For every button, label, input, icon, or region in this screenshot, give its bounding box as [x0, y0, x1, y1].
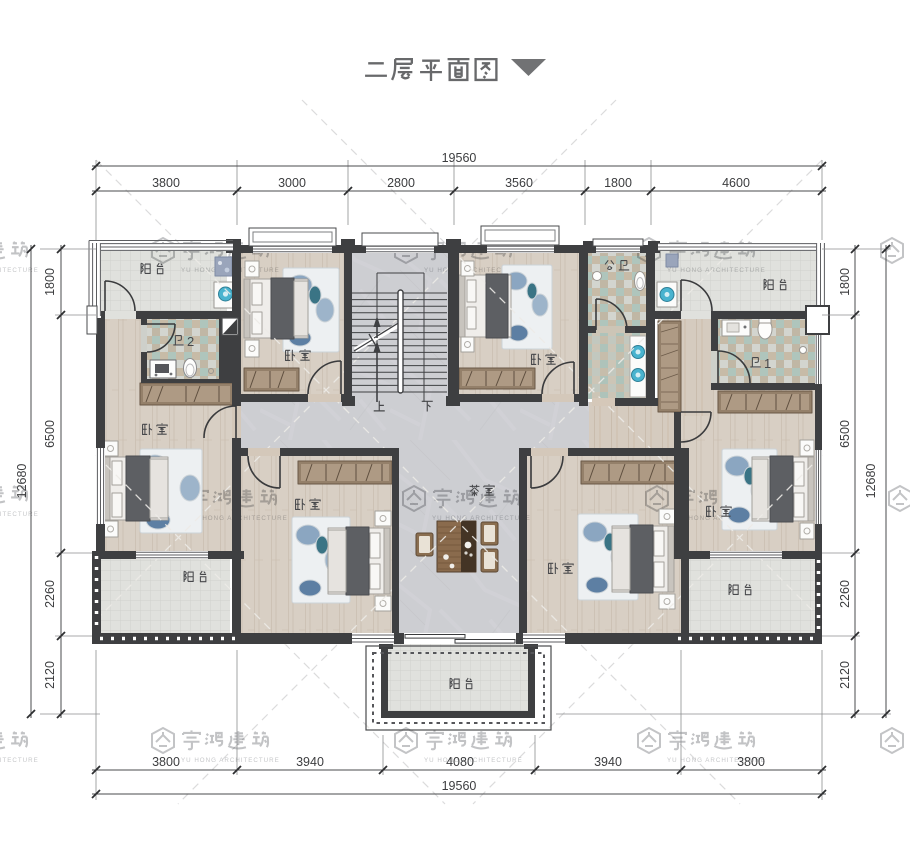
- svg-text:3800: 3800: [152, 176, 180, 190]
- svg-text:4080: 4080: [446, 755, 474, 769]
- svg-text:12680: 12680: [864, 464, 878, 499]
- svg-text:3560: 3560: [505, 176, 533, 190]
- svg-text:4600: 4600: [722, 176, 750, 190]
- svg-text:2120: 2120: [43, 661, 57, 689]
- svg-text:19560: 19560: [442, 779, 477, 793]
- svg-text:3940: 3940: [296, 755, 324, 769]
- svg-text:2120: 2120: [838, 661, 852, 689]
- svg-text:3000: 3000: [278, 176, 306, 190]
- svg-text:2: 2: [187, 334, 194, 349]
- svg-text:6500: 6500: [838, 420, 852, 448]
- svg-text:1800: 1800: [838, 268, 852, 296]
- svg-text:6500: 6500: [43, 420, 57, 448]
- svg-text:1: 1: [764, 356, 771, 371]
- svg-text:3940: 3940: [594, 755, 622, 769]
- svg-text:1800: 1800: [604, 176, 632, 190]
- svg-text:2260: 2260: [43, 580, 57, 608]
- svg-text:2800: 2800: [387, 176, 415, 190]
- svg-text:1800: 1800: [43, 268, 57, 296]
- svg-text:2260: 2260: [838, 580, 852, 608]
- svg-text:12680: 12680: [15, 464, 29, 499]
- svg-text:19560: 19560: [442, 151, 477, 165]
- svg-text:3800: 3800: [152, 755, 180, 769]
- svg-text:3800: 3800: [737, 755, 765, 769]
